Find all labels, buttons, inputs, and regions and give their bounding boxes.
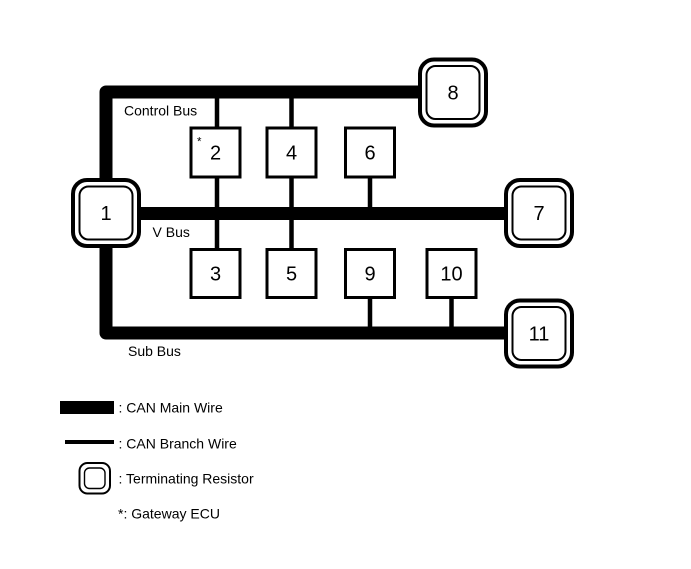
svg-text:2: 2 bbox=[210, 143, 221, 165]
svg-text:*: * bbox=[197, 136, 202, 148]
svg-text:3: 3 bbox=[210, 264, 221, 286]
svg-text:1: 1 bbox=[100, 203, 111, 225]
svg-text:5: 5 bbox=[286, 264, 297, 286]
svg-text:V Bus: V Bus bbox=[153, 224, 190, 240]
svg-text:*: Gateway ECU: *: Gateway ECU bbox=[118, 506, 220, 522]
svg-text:6: 6 bbox=[364, 143, 375, 165]
svg-text:4: 4 bbox=[286, 143, 297, 165]
svg-text:9: 9 bbox=[364, 264, 375, 286]
svg-text:8: 8 bbox=[447, 83, 458, 105]
svg-text:: CAN Branch Wire: : CAN Branch Wire bbox=[119, 435, 237, 451]
svg-text:7: 7 bbox=[533, 203, 544, 225]
svg-text:: Terminating Resistor: : Terminating Resistor bbox=[119, 471, 254, 487]
svg-text:Control Bus: Control Bus bbox=[124, 102, 197, 118]
svg-text:11: 11 bbox=[529, 324, 550, 346]
svg-text:: CAN Main Wire: : CAN Main Wire bbox=[119, 400, 223, 416]
svg-text:10: 10 bbox=[440, 264, 462, 286]
svg-text:Sub Bus: Sub Bus bbox=[128, 343, 181, 359]
